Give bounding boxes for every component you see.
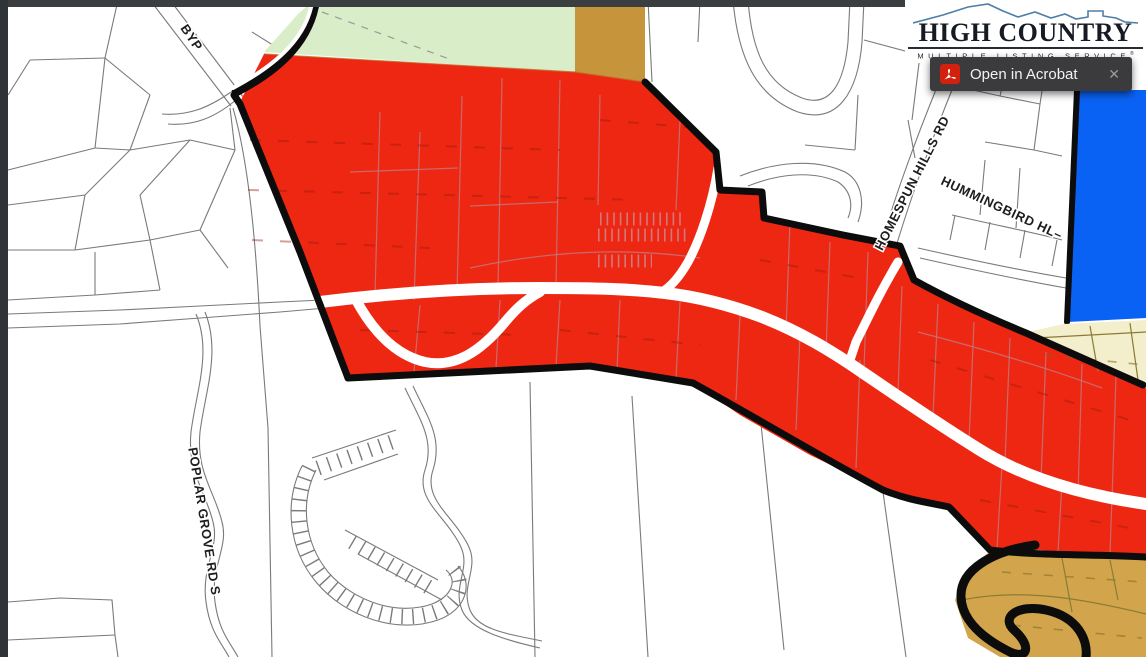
open-in-acrobat-bar[interactable]: Open in Acrobat ✕ <box>930 57 1132 91</box>
acrobat-pdf-icon <box>940 64 960 84</box>
logo-rule <box>908 47 1143 49</box>
tan-zone-region <box>575 0 645 84</box>
screenshot-stage: BYP POPLAR GROVE RD S HOMESPUN HILLS RD … <box>0 0 1146 657</box>
mls-logo: HIGH COUNTRY MULTIPLE LISTING SERVICE® <box>905 0 1146 63</box>
open-in-acrobat-label: Open in Acrobat <box>970 66 1078 83</box>
viewer-left-strip <box>0 0 8 657</box>
blue-zone-region <box>1068 90 1146 322</box>
logo-title: HIGH COUNTRY <box>905 20 1146 46</box>
gold-zone-region <box>955 553 1146 657</box>
registered-mark: ® <box>1130 51 1134 57</box>
parcel-zoning-map: BYP POPLAR GROVE RD S HOMESPUN HILLS RD … <box>0 0 1146 657</box>
close-icon[interactable]: ✕ <box>1106 64 1122 85</box>
